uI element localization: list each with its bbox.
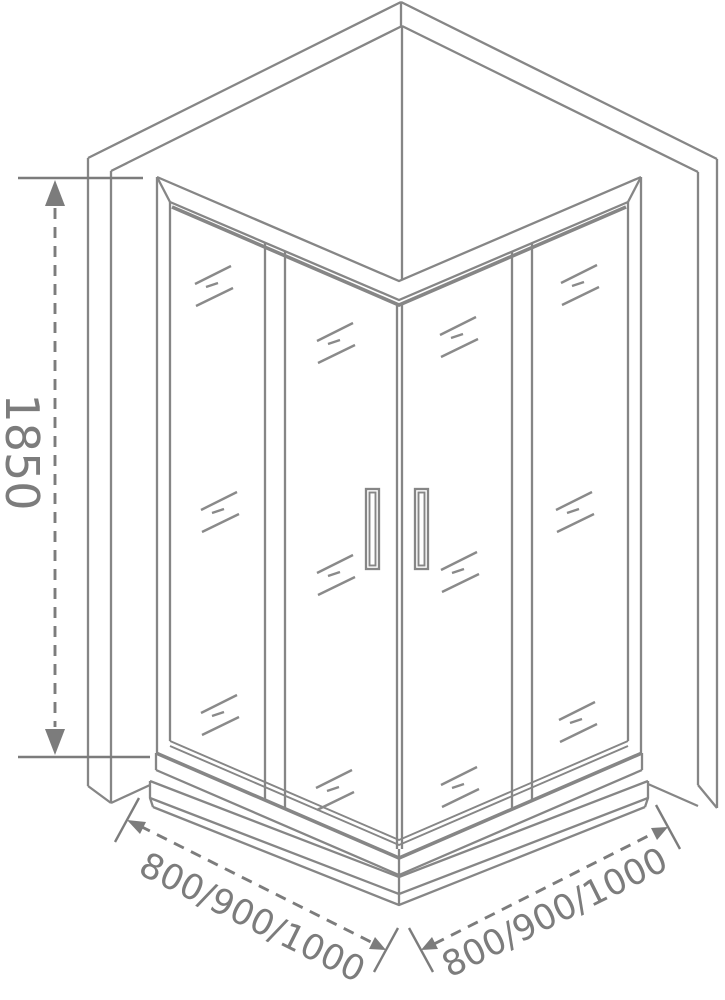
right-wall-floor-line bbox=[648, 784, 698, 806]
left-wall-floor-line bbox=[111, 785, 150, 803]
right-wall-panel bbox=[401, 2, 717, 808]
top-rail-inner-edge bbox=[170, 202, 628, 300]
width-right-dimension-label: 800/900/1000 bbox=[436, 840, 674, 986]
left-door-handle bbox=[366, 489, 379, 569]
right-door-handle-inner bbox=[419, 493, 425, 566]
glass-sparkle-icon bbox=[441, 552, 479, 592]
glass-sparkle-icon bbox=[201, 695, 239, 735]
height-dimension: 1850 bbox=[0, 178, 150, 757]
tray-left-corner-edge bbox=[150, 781, 153, 807]
bottom-rail-track bbox=[156, 753, 642, 858]
glass-sparkle-icon bbox=[195, 266, 233, 306]
right-wall-bottom-bevel bbox=[698, 785, 717, 808]
height-dimension-label: 1850 bbox=[0, 393, 49, 510]
glass-sparkle-icon bbox=[440, 317, 478, 357]
glass-sparkle-icon bbox=[559, 702, 597, 742]
right-wall-outer-top-edge bbox=[401, 2, 717, 159]
glass-sparkle-icon bbox=[556, 492, 594, 532]
tray-right-corner-edge bbox=[645, 781, 648, 807]
left-wall-panel bbox=[88, 2, 402, 803]
glass-sparkle-icon bbox=[561, 265, 599, 305]
drawing-canvas: 1850 800/900/1000 800/900/1000 bbox=[0, 0, 725, 1000]
right-wall-inner-top-edge bbox=[402, 26, 698, 172]
left-wall-inner-top-edge bbox=[111, 26, 402, 171]
arrow-down-icon bbox=[45, 729, 65, 755]
glass-sparkle-icon bbox=[201, 492, 239, 532]
top-rail-track bbox=[172, 207, 626, 305]
glass-sparkle-icon bbox=[317, 555, 355, 595]
arrow-up-icon bbox=[45, 180, 65, 206]
width-left-dimension-label: 800/900/1000 bbox=[133, 845, 371, 991]
glass-bottom-shadow-edge bbox=[170, 746, 628, 845]
glass-sparkle-icon bbox=[317, 323, 355, 363]
enclosure-frame bbox=[156, 177, 642, 905]
right-door-handle bbox=[415, 489, 428, 569]
glass-sparkle-icon bbox=[441, 767, 479, 807]
right-door-handle-outer bbox=[415, 489, 428, 569]
arrow-down-right-icon bbox=[369, 937, 386, 950]
left-wall-outer-top-edge bbox=[88, 2, 401, 158]
left-door-handle-inner bbox=[370, 493, 376, 566]
width-dimension-right: 800/900/1000 bbox=[409, 805, 680, 986]
glass-sparkle-icon bbox=[316, 770, 354, 810]
left-door-handle-outer bbox=[366, 489, 379, 569]
left-wall-bottom-bevel bbox=[88, 786, 111, 803]
shower-enclosure-technical-drawing: 1850 800/900/1000 800/900/1000 bbox=[0, 0, 725, 1000]
arrow-up-right-icon bbox=[651, 827, 668, 840]
